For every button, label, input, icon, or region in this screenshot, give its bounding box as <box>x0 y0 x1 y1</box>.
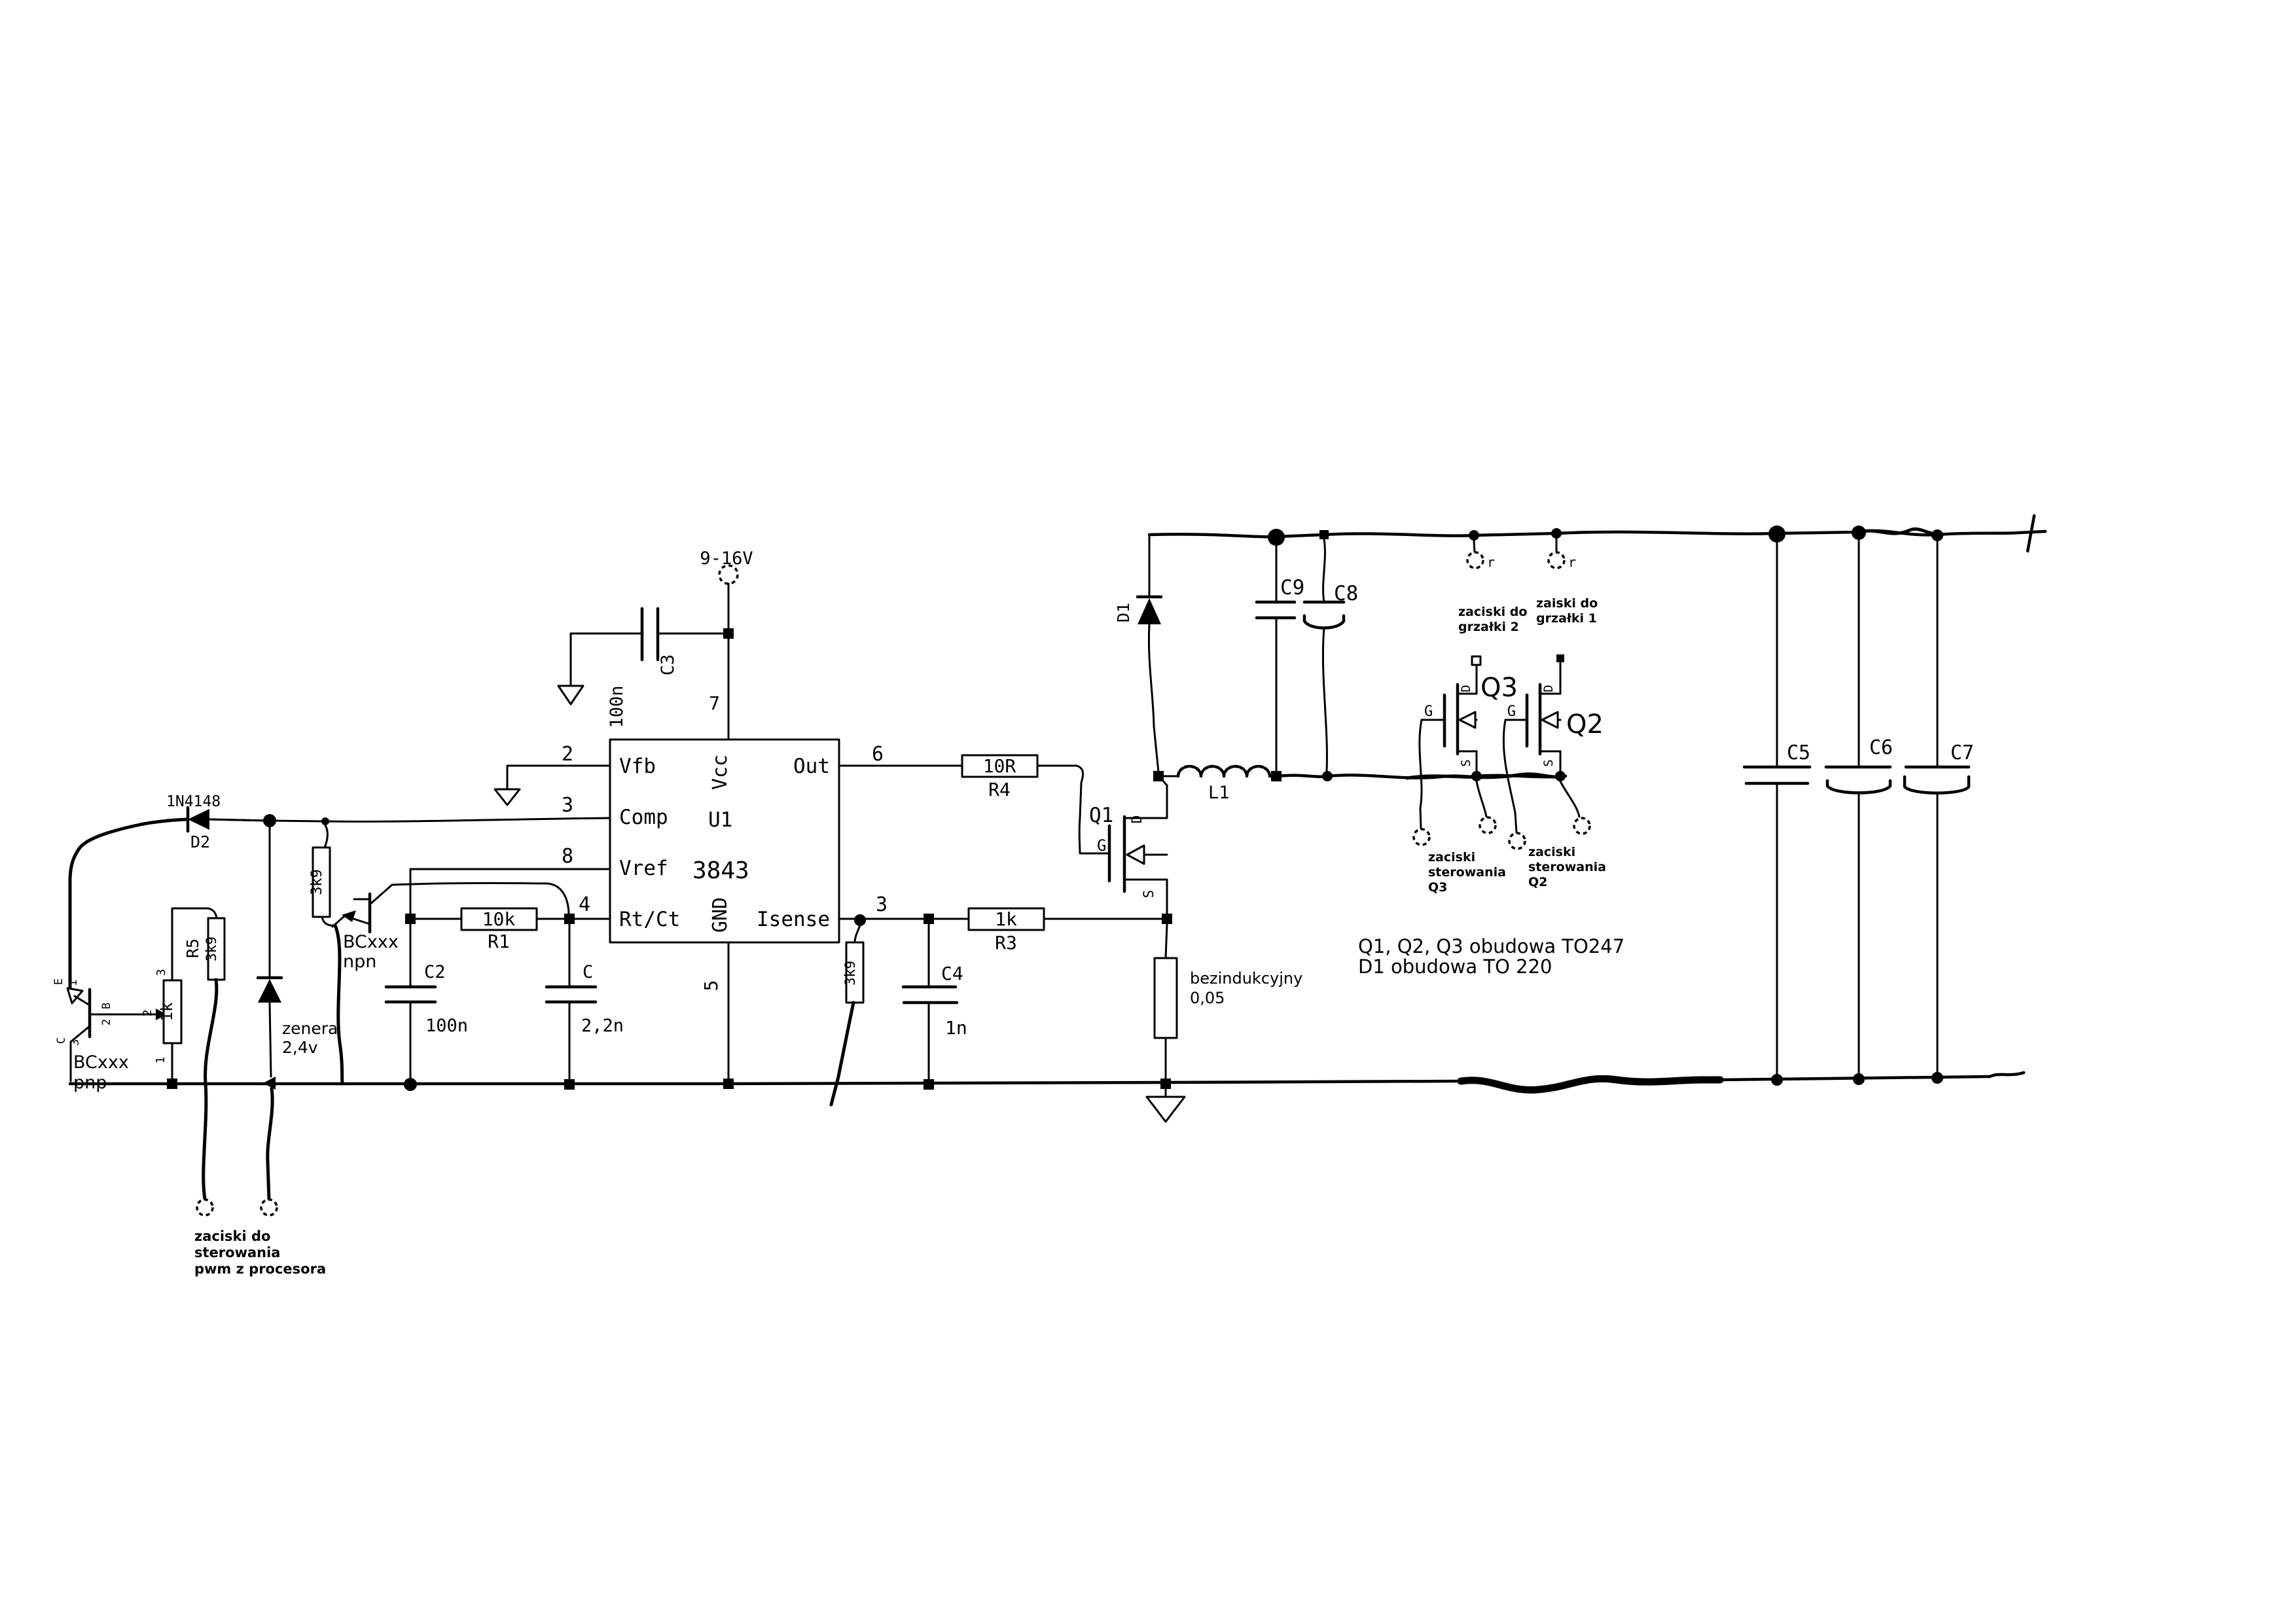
ic-part-number: 3843 <box>692 857 749 884</box>
diode-d1: D1 <box>1114 535 1164 781</box>
c4-value: 1n <box>945 1017 967 1039</box>
ic-pin7-number: 7 <box>709 692 720 714</box>
junction-dot <box>1768 526 1785 543</box>
cap-ct: C 2,2n <box>547 924 624 1090</box>
r1-value: 10k <box>482 908 516 930</box>
ctrl-q2-line2: sterowania <box>1528 860 1606 874</box>
pwm-caption-line2: sterowania <box>194 1245 280 1260</box>
d2-ref: D2 <box>190 832 210 851</box>
ic-pin-out: Out <box>793 755 830 778</box>
resistor-r1: 10k R1 <box>405 908 575 952</box>
ic-u1: Vfb Comp Vref Rt/Ct Out Isense Vcc GND U… <box>610 692 839 991</box>
ic-pin-rtct: Rt/Ct <box>619 908 680 931</box>
c4-ref: C4 <box>941 963 963 984</box>
r1-ref: R1 <box>488 931 510 952</box>
r-isense-value: 3k9 <box>842 961 858 986</box>
resistor-r5: 3k9 R5 <box>183 918 224 1215</box>
cap-c8: C8 <box>1304 530 1358 781</box>
junction-dot <box>1771 1074 1783 1086</box>
ctrl-q3-line3: Q3 <box>1428 880 1447 895</box>
q1-ref: Q1 <box>1089 804 1113 827</box>
ctrl-q2-line3: Q2 <box>1528 875 1547 889</box>
c8-ref: C8 <box>1334 582 1358 605</box>
note-line2: D1 obudowa TO 220 <box>1358 955 1552 978</box>
ctrl-q3-line2: sterowania <box>1428 865 1506 880</box>
schematic-page: 9-16V 100n C3 Vfb Comp Vref Rt/Ct Out Is… <box>0 0 2296 1623</box>
package-note: Q1, Q2, Q3 obudowa TO247 D1 obudowa TO 2… <box>1358 935 1624 978</box>
ctrl-q3-line1: zaciski <box>1428 850 1475 865</box>
q3-source-terminal <box>1480 817 1496 833</box>
heater1-caption-2: grzałki 1 <box>1536 611 1597 626</box>
q2-ref: Q2 <box>1566 709 1604 740</box>
diode-icon <box>1138 598 1161 624</box>
r3-value: 1k <box>995 908 1017 930</box>
r5-value: 3k9 <box>204 936 219 961</box>
pnp-e: E <box>52 978 65 985</box>
cap-c5: C5 <box>1744 526 1810 1076</box>
junction-dot <box>1322 771 1333 781</box>
q3-g: G <box>1424 704 1433 720</box>
bottom-rail <box>70 1072 2024 1090</box>
ic-pin-comp: Comp <box>619 806 668 829</box>
heater2-caption-2: grzałki 2 <box>1458 620 1519 634</box>
supply-terminal: 9-16V <box>700 548 753 740</box>
pot-pin2: 2 <box>141 1010 154 1017</box>
c2-ref: C2 <box>424 962 446 982</box>
mosfet-q1: Q1 D S G <box>1089 780 1172 924</box>
pnp-e-num: 1 <box>67 980 80 986</box>
junction-dot <box>854 914 866 926</box>
terminal-mark-1: r <box>1487 554 1495 570</box>
pnp-b: B <box>100 1003 113 1009</box>
junction-dot <box>405 914 416 924</box>
comp-net: 3 <box>209 794 610 827</box>
c2-value: 100n <box>425 1016 468 1036</box>
resistor-r4: 6 10R R4 <box>839 743 1109 853</box>
junction-dot <box>1271 771 1282 781</box>
l1-ref: L1 <box>1208 783 1230 803</box>
junction-dot <box>1853 1073 1865 1085</box>
ic-ref: U1 <box>708 808 732 832</box>
pwm-caption: zaciski do sterowania pwm z procesora <box>194 1228 326 1277</box>
diode-d2: 1N4148 D2 <box>166 793 270 851</box>
ground-icon <box>495 789 520 805</box>
c3-value: 100n <box>607 685 627 728</box>
junction-dot <box>1471 771 1482 781</box>
junction-dot <box>1268 529 1285 546</box>
inductor-l1: L1 <box>1164 766 1270 803</box>
npn-label-2: npn <box>343 952 376 972</box>
junction-dot <box>723 628 734 639</box>
junction-dot <box>1153 771 1164 781</box>
q2-gate-terminal <box>1509 833 1525 849</box>
ic-pin-vfb: Vfb <box>619 755 656 778</box>
pin4-number: 4 <box>579 893 590 916</box>
npn-label-1: BCxxx <box>343 932 399 952</box>
pot-value: 1k <box>158 1002 176 1021</box>
junction-dot <box>1931 1072 1943 1084</box>
pin2-number: 2 <box>562 743 573 766</box>
q3-ref: Q3 <box>1480 673 1518 703</box>
junction-dot <box>1852 526 1866 540</box>
cap-c4: C4 1n <box>903 924 967 1090</box>
r-comp-value: 3k9 <box>309 869 325 895</box>
pnp-c: C <box>55 1037 68 1044</box>
q2-drain-terminal <box>1556 654 1564 662</box>
isense-net: 3 <box>839 893 969 926</box>
body-arrow-icon <box>1460 712 1475 728</box>
wire-left-feedback <box>70 819 188 990</box>
mosfet-q2: Q2 G D S <box>1503 654 1604 849</box>
c5-ref: C5 <box>1787 741 1810 764</box>
q3-d: D <box>1459 685 1473 692</box>
heater-captions: zaciski do grzałki 2 zaiski do grzałki 1 <box>1458 596 1598 634</box>
pot-pin3: 3 <box>154 969 168 976</box>
terminal-mark-2: r <box>1568 554 1576 570</box>
schematic-canvas: 9-16V 100n C3 Vfb Comp Vref Rt/Ct Out Is… <box>0 0 2296 1623</box>
transistor-pnp: E 1 B 2 C 3 BCxxx pnp <box>52 978 166 1093</box>
q3-gate-terminal <box>1414 829 1429 845</box>
zener-icon <box>258 979 281 1003</box>
zener-label-1: zenera <box>282 1019 338 1038</box>
cap-c7: C7 <box>1905 529 1974 1075</box>
q2-s: S <box>1541 759 1556 766</box>
resistor-3k9-isense: 3k9 <box>831 925 863 1105</box>
junction-dot <box>1931 529 1943 541</box>
diode-icon <box>188 809 209 830</box>
pin2-ground: 2 <box>495 743 610 805</box>
pwm-terminal-1 <box>197 1200 213 1215</box>
junction-dot <box>1555 771 1566 781</box>
r4-ref: R4 <box>988 779 1011 800</box>
pin3-number: 3 <box>562 794 573 817</box>
pwm-caption-line1: zaciski do <box>194 1228 270 1244</box>
body-arrow-icon <box>1127 846 1144 864</box>
zener-label-2: 2,4v <box>282 1038 318 1057</box>
pnp-b-num: 2 <box>100 1019 113 1026</box>
ic-pin-gnd: GND <box>709 897 732 933</box>
switch-rail <box>1270 774 1566 778</box>
shunt-label-1: bezindukcyjny <box>1190 969 1302 988</box>
heater1-terminal <box>1549 552 1564 568</box>
body-arrow-icon <box>1542 712 1558 728</box>
heater2-terminal <box>1467 552 1483 568</box>
rtct-net: 4 <box>575 893 610 919</box>
resistor-shunt: bezindukcyjny 0,05 <box>1147 924 1302 1122</box>
r3-ref: R3 <box>995 932 1017 954</box>
q2-g: G <box>1507 704 1516 720</box>
ct-value: 2,2n <box>581 1016 624 1036</box>
heater1-caption-1: zaiski do <box>1536 596 1598 611</box>
rail-end-squiggle <box>1990 1073 2024 1077</box>
pnp-c-num: 3 <box>69 1039 82 1046</box>
ic-pin5-number: 5 <box>700 980 722 991</box>
q3-s: S <box>1459 759 1473 766</box>
cap-c3: 100n C3 <box>571 609 723 728</box>
junction-dot <box>924 914 934 924</box>
ground-icon <box>558 686 583 704</box>
d1-ref: D1 <box>1114 603 1133 622</box>
cap-c9: C9 <box>1257 529 1304 781</box>
junction-dot <box>1162 914 1172 924</box>
junction-dot <box>1319 530 1329 539</box>
junction-dot <box>1551 528 1562 539</box>
ct-ref: C <box>583 962 593 982</box>
c3-ref: C3 <box>658 654 678 676</box>
resistor-r3: 1k R3 <box>969 908 1162 954</box>
pin8-number: 8 <box>562 845 573 868</box>
ic-pin-isense: Isense <box>757 908 830 931</box>
cap-c6: C6 <box>1826 526 1893 1075</box>
pwm-caption-line3: pwm z procesora <box>194 1261 326 1277</box>
shunt-label-2: 0,05 <box>1190 989 1225 1007</box>
c6-ref: C6 <box>1869 736 1893 759</box>
r4-value: 10R <box>983 755 1016 777</box>
q2-d: D <box>1541 685 1556 692</box>
pnp-label-1: BCxxx <box>73 1052 129 1073</box>
junction-dot <box>564 914 575 924</box>
r5-ref: R5 <box>183 938 202 958</box>
q1-d: D <box>1129 815 1145 824</box>
pin3-right-number: 3 <box>876 893 888 916</box>
pin6-number: 6 <box>872 743 884 766</box>
mosfet-q3: Q3 G D S <box>1414 656 1518 845</box>
heater2-caption-1: zaciski do <box>1458 605 1527 619</box>
ic-pin-vcc: Vcc <box>709 755 732 790</box>
c7-ref: C7 <box>1950 741 1974 764</box>
note-line1: Q1, Q2, Q3 obudowa TO247 <box>1358 935 1624 957</box>
supply-terminal-icon <box>719 565 738 584</box>
junction-dot <box>321 817 329 825</box>
c9-ref: C9 <box>1280 576 1304 599</box>
q1-g: G <box>1097 836 1106 855</box>
ground-symbol-c3 <box>558 633 583 704</box>
q2-source-terminal <box>1574 818 1590 834</box>
pwm-terminal-2 <box>261 1200 277 1215</box>
q1-s: S <box>1141 890 1157 899</box>
ic-pin-vref: Vref <box>619 857 668 880</box>
ctrl-q2-line1: zaciski <box>1528 845 1575 859</box>
pot-pin1: 1 <box>154 1057 168 1064</box>
ctrl-captions: zaciski sterowania Q3 zaciski sterowania… <box>1428 845 1606 895</box>
q3-drain-terminal <box>1472 656 1480 665</box>
pin5-wire <box>723 942 734 1089</box>
ground-icon <box>1147 1097 1185 1122</box>
junction-dot <box>1469 530 1479 541</box>
d2-part: 1N4148 <box>166 793 221 810</box>
